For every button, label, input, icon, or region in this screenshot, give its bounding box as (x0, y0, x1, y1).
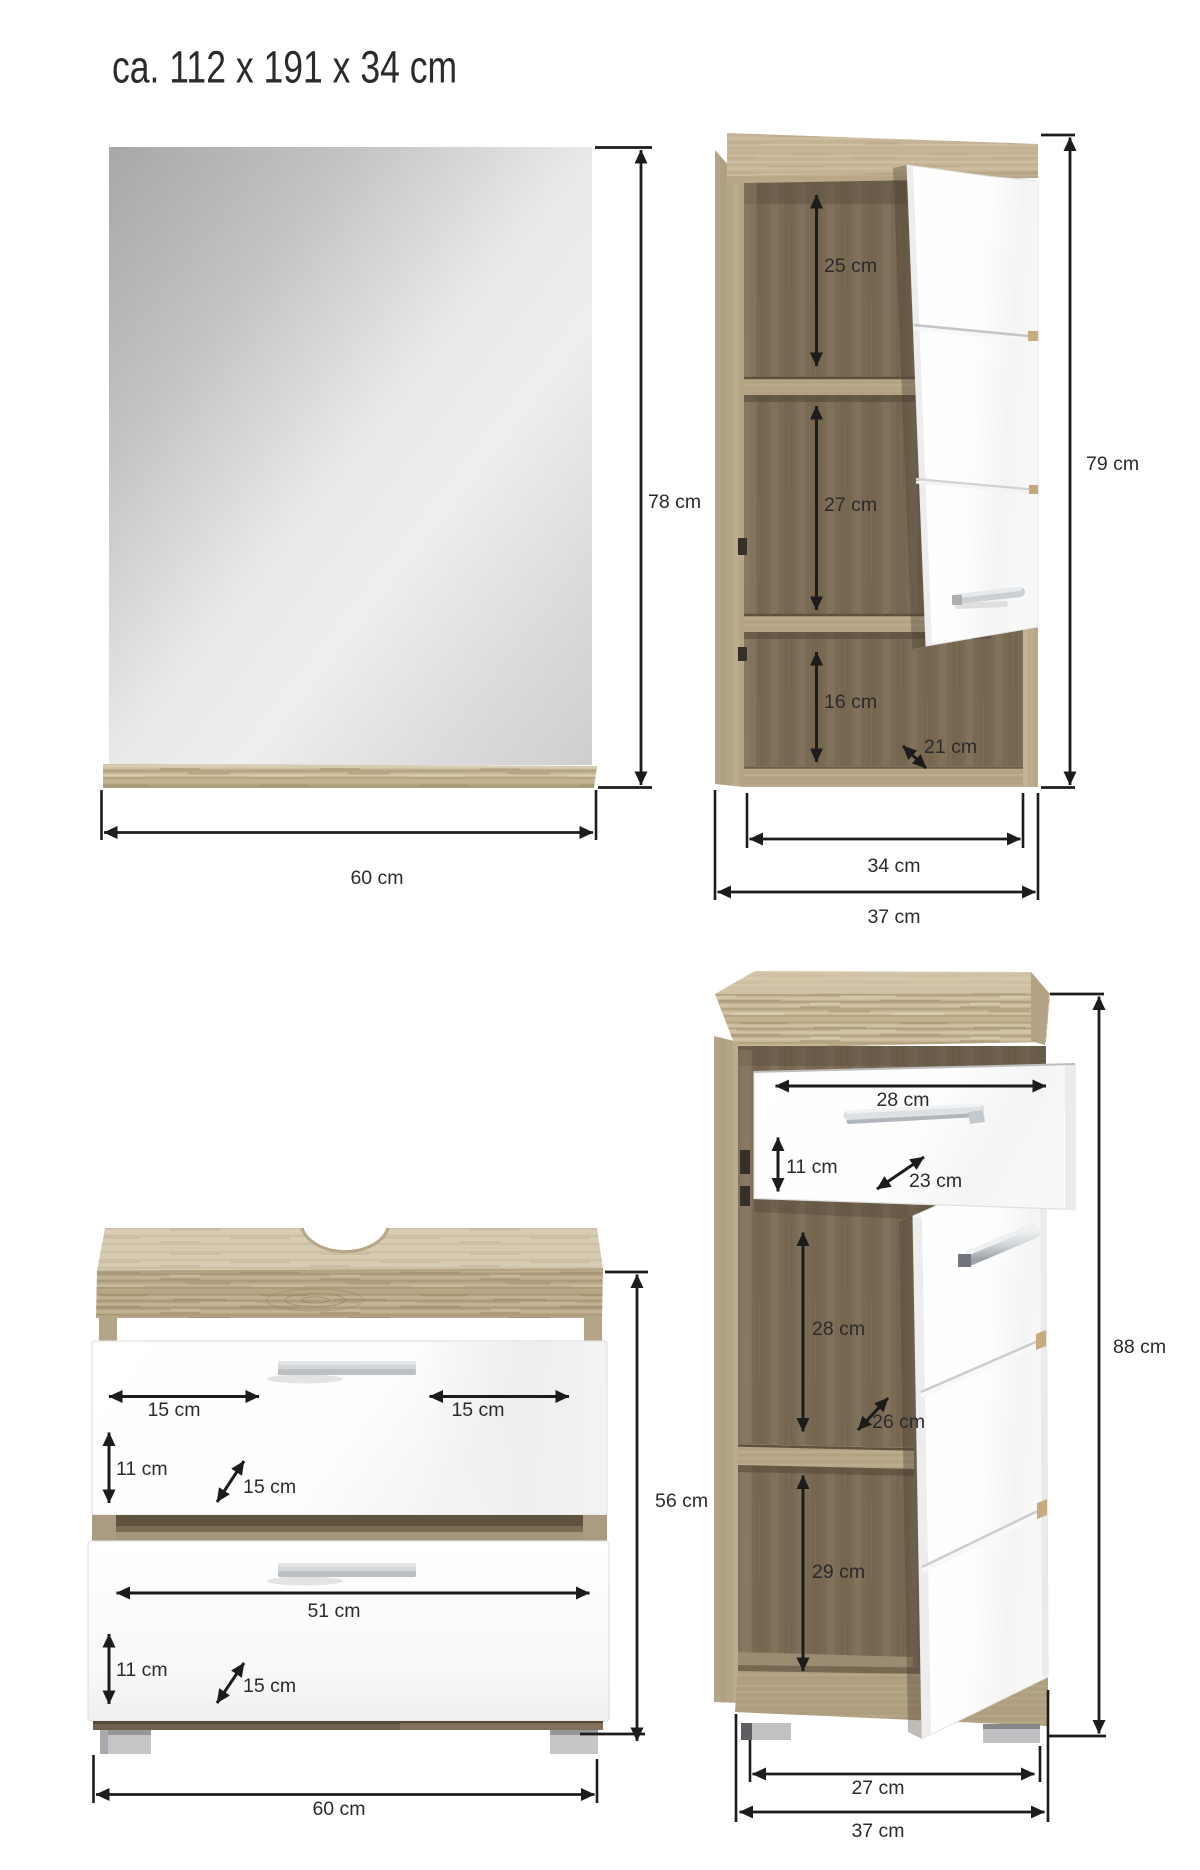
svg-text:27 cm: 27 cm (851, 1777, 904, 1799)
svg-text:28 cm: 28 cm (812, 1318, 865, 1340)
svg-text:ca. 112 x 191 x 34 cm: ca. 112 x 191 x 34 cm (112, 41, 457, 92)
svg-text:21 cm: 21 cm (924, 736, 977, 758)
svg-text:15 cm: 15 cm (451, 1399, 504, 1421)
svg-text:37 cm: 37 cm (867, 906, 920, 928)
svg-text:11 cm: 11 cm (116, 1659, 168, 1681)
svg-text:60 cm: 60 cm (350, 867, 403, 889)
svg-text:78 cm: 78 cm (648, 491, 701, 513)
svg-text:27 cm: 27 cm (824, 494, 877, 516)
svg-text:56 cm: 56 cm (655, 1490, 708, 1512)
svg-text:37 cm: 37 cm (851, 1820, 904, 1842)
svg-text:11 cm: 11 cm (116, 1458, 168, 1480)
svg-text:11 cm: 11 cm (786, 1156, 838, 1178)
svg-text:15 cm: 15 cm (243, 1476, 296, 1498)
svg-text:28 cm: 28 cm (876, 1089, 929, 1111)
svg-text:25 cm: 25 cm (824, 255, 877, 277)
svg-text:34 cm: 34 cm (867, 855, 920, 877)
svg-text:79 cm: 79 cm (1086, 453, 1139, 475)
svg-text:23 cm: 23 cm (909, 1170, 962, 1192)
svg-text:15 cm: 15 cm (243, 1675, 296, 1697)
svg-text:60 cm: 60 cm (312, 1798, 365, 1820)
svg-text:16 cm: 16 cm (824, 691, 877, 713)
svg-text:88 cm: 88 cm (1113, 1336, 1166, 1358)
svg-text:29 cm: 29 cm (812, 1561, 865, 1583)
svg-text:15 cm: 15 cm (147, 1399, 200, 1421)
svg-text:51 cm: 51 cm (307, 1600, 360, 1622)
svg-text:26 cm: 26 cm (872, 1411, 925, 1433)
